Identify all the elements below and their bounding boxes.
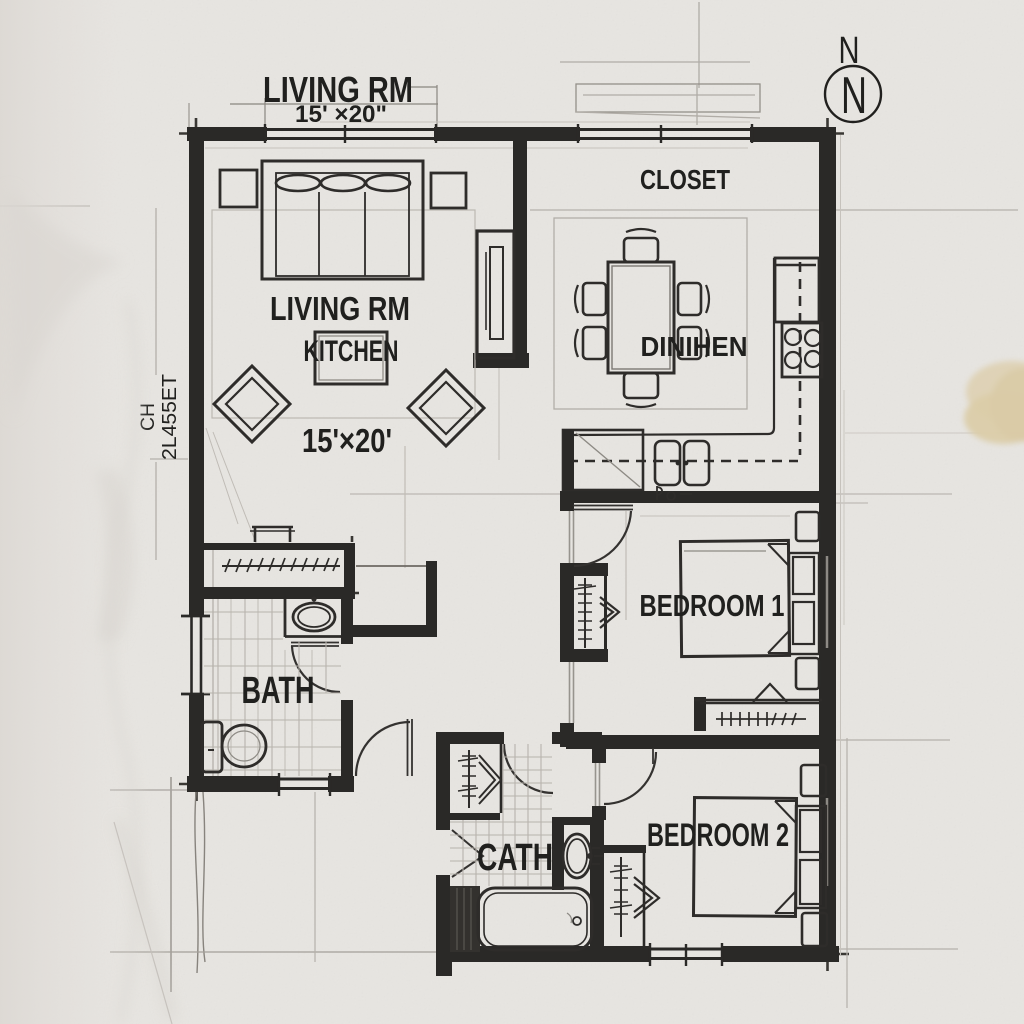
svg-text:LIVING RM: LIVING RM xyxy=(270,290,410,327)
svg-text:DINIHEN: DINIHEN xyxy=(641,331,748,362)
svg-text:KITCHEN: KITCHEN xyxy=(304,335,399,368)
svg-text:2L455ET: 2L455ET xyxy=(159,374,181,460)
svg-text:CLOSET: CLOSET xyxy=(640,164,730,195)
svg-text:BATH: BATH xyxy=(242,670,315,712)
svg-text:15' ×20": 15' ×20" xyxy=(295,101,387,128)
svg-text:CATH: CATH xyxy=(477,837,553,879)
svg-text:BEDROOM 2: BEDROOM 2 xyxy=(647,817,789,853)
svg-text:15'×20': 15'×20' xyxy=(302,422,392,459)
svg-text:BEDROOM 1: BEDROOM 1 xyxy=(640,588,785,623)
svg-text:N: N xyxy=(841,67,867,125)
